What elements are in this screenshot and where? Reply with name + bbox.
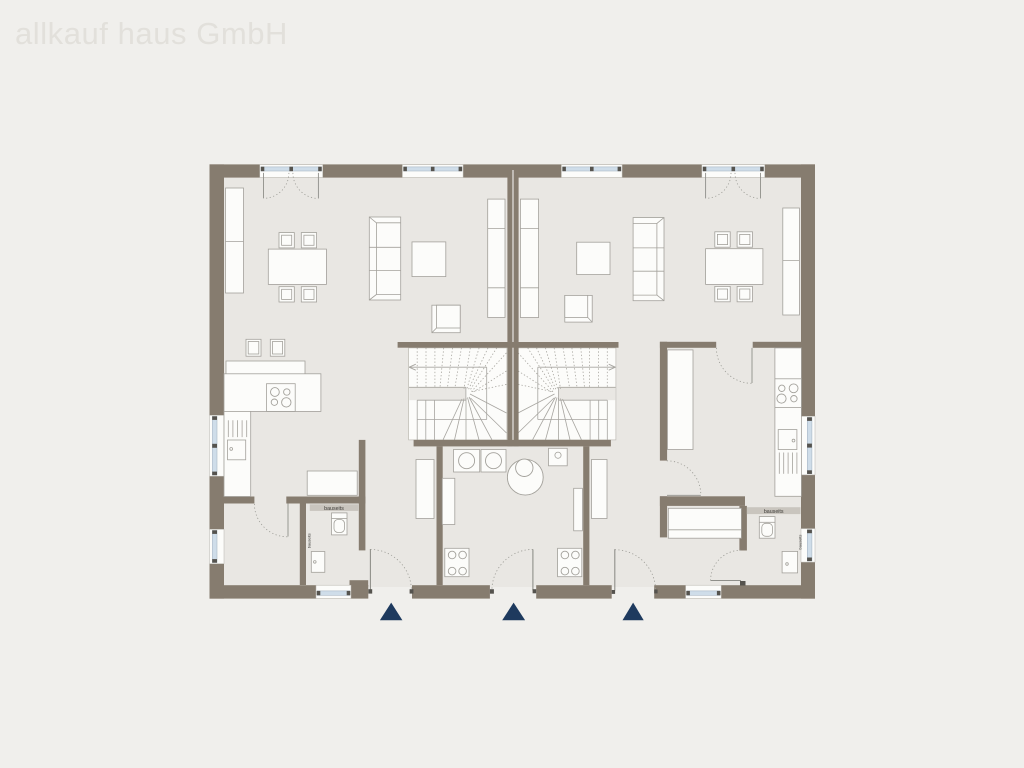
svg-text:bauseits: bauseits [797, 535, 802, 550]
svg-text:allkauf haus GmbH: allkauf haus GmbH [15, 16, 288, 51]
svg-text:bauseits: bauseits [764, 509, 784, 515]
svg-text:bauseits: bauseits [307, 533, 312, 548]
svg-text:bauseits: bauseits [324, 506, 344, 512]
